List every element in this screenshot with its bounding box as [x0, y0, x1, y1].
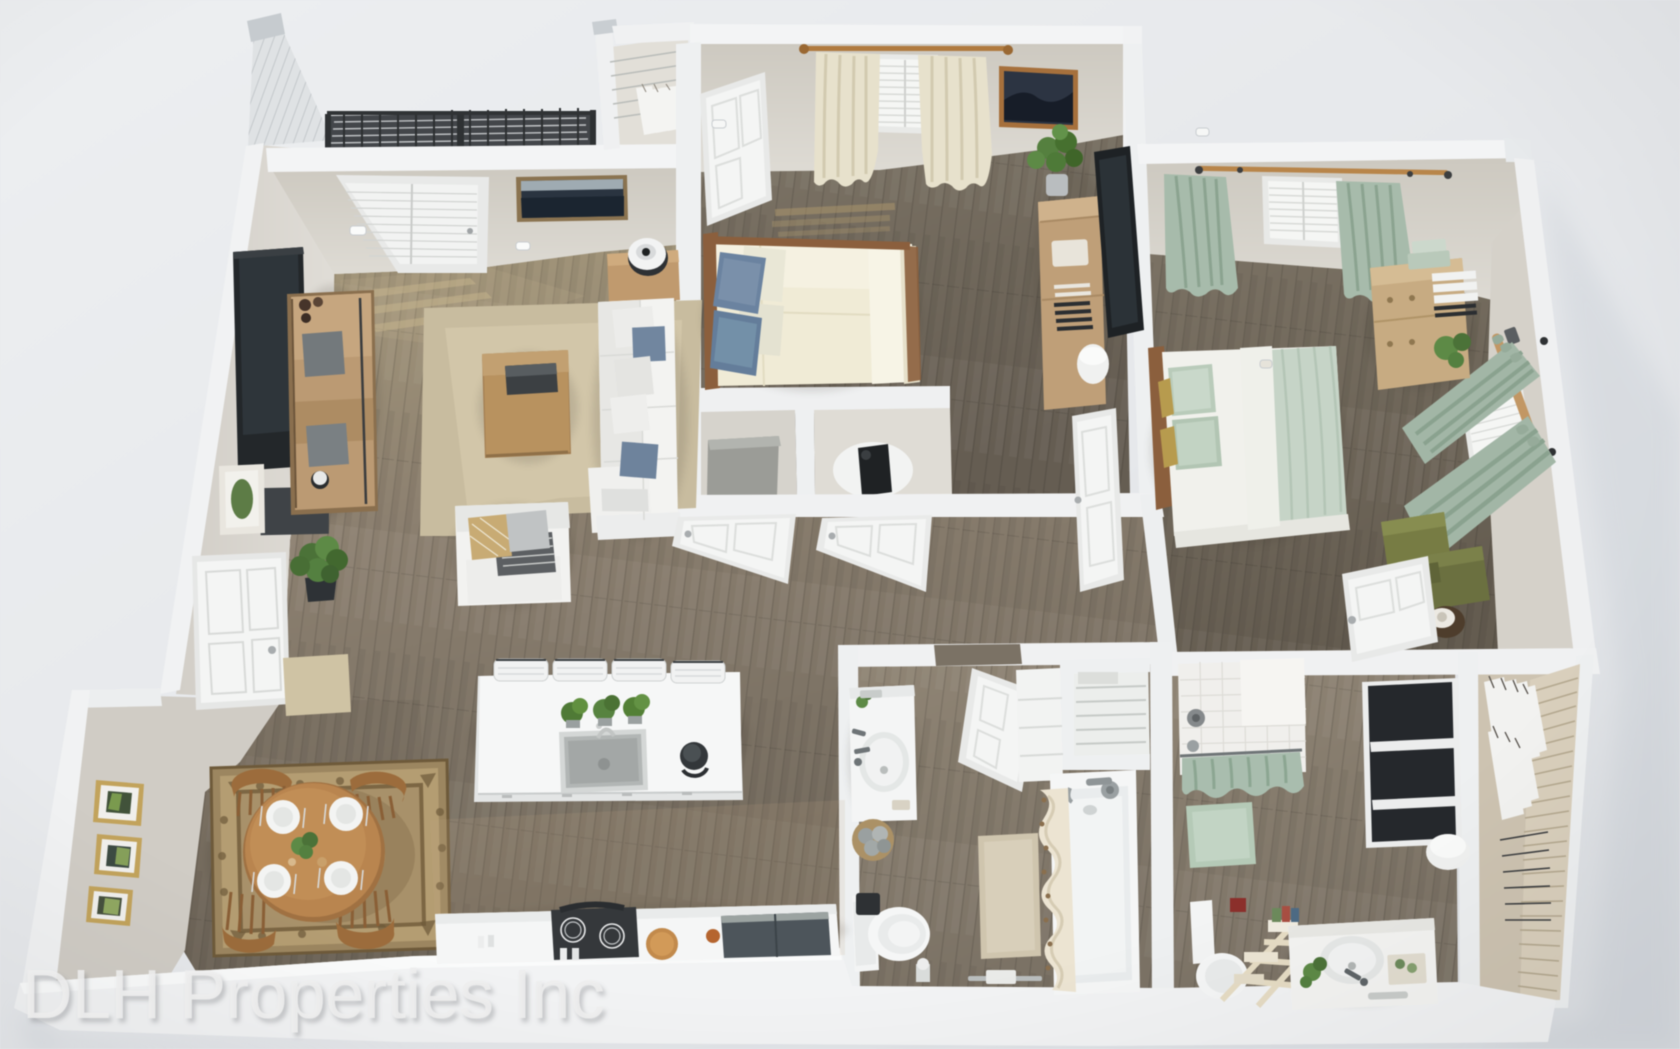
svg-text:DLH Properties Inc: DLH Properties Inc — [22, 955, 604, 1033]
